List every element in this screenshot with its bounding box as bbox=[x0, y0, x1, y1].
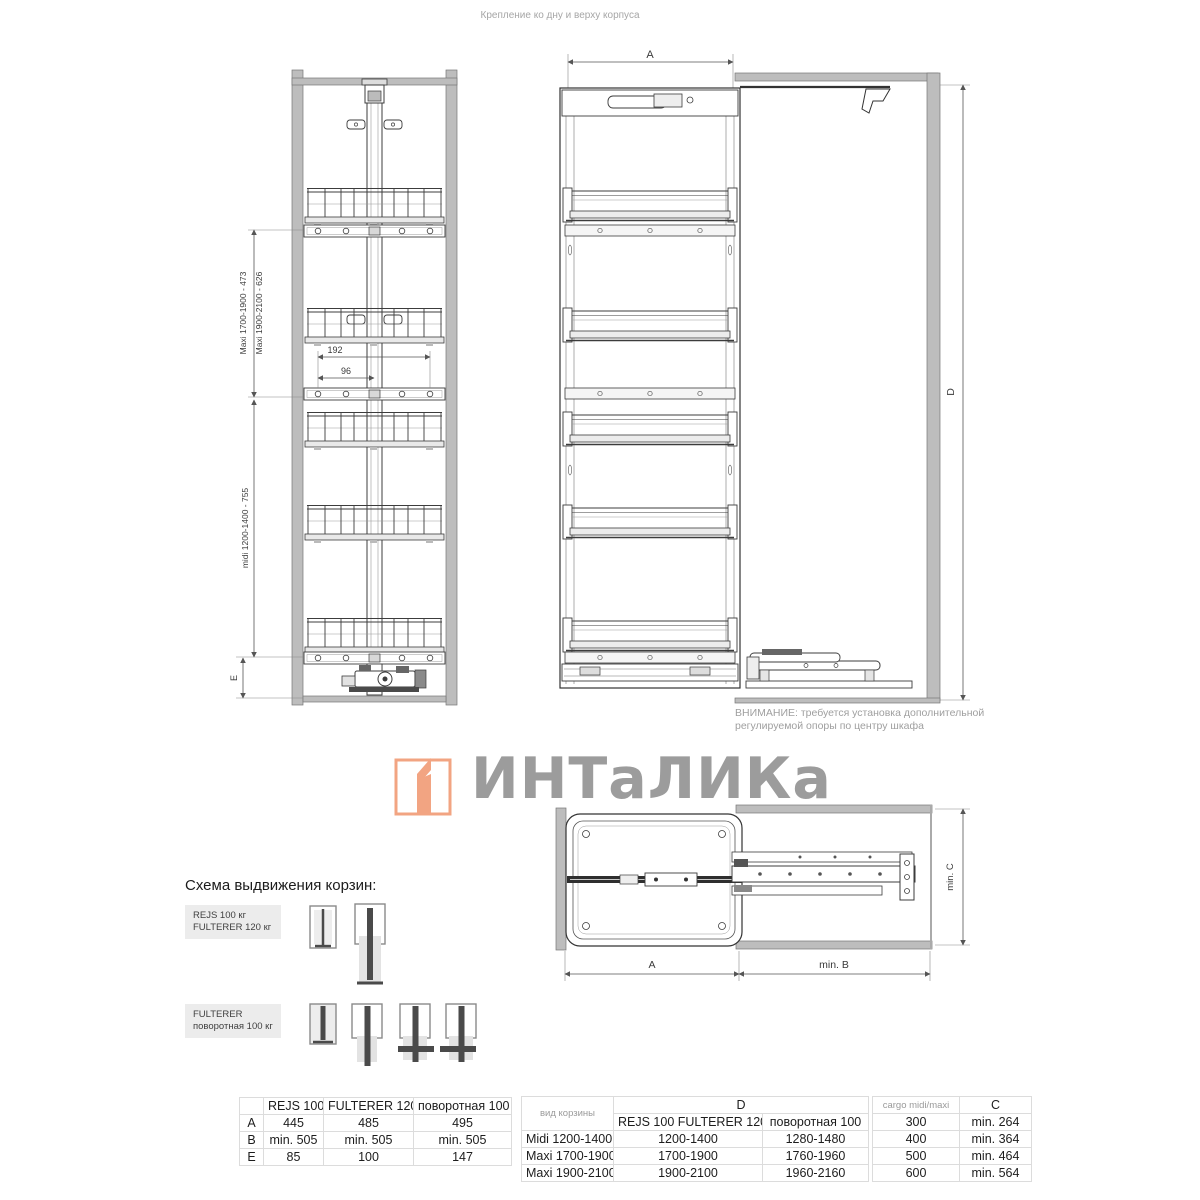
warning-line-1: ВНИМАНИЕ: требуется установка дополнител… bbox=[735, 707, 1015, 720]
table-cell: Maxi 1900-2100 bbox=[522, 1165, 614, 1182]
table-row: 400 min. 364 bbox=[873, 1131, 1032, 1148]
swivel-rotated-icon bbox=[398, 1004, 434, 1062]
warning-note: ВНИМАНИЕ: требуется установка дополнител… bbox=[735, 707, 1015, 733]
schema-row2-line2: поворотная 100 кг bbox=[193, 1021, 281, 1033]
logo-icon bbox=[393, 744, 459, 820]
page: Крепление ко дну и верху корпуса bbox=[0, 0, 1200, 1200]
table-row: 600 min. 564 bbox=[873, 1165, 1032, 1182]
side-dim-d-label: D bbox=[945, 388, 957, 396]
table-cell: 1700-1900 bbox=[614, 1148, 763, 1165]
top-dim-a-label: A bbox=[648, 959, 655, 971]
table-row: REJS 100 FULTERER 120 поворотная 100 bbox=[240, 1098, 512, 1115]
dim-maxi-1700-label: Maxi 1700-1900 - 473 bbox=[238, 271, 248, 354]
table-cell: 1200-1400 bbox=[614, 1131, 763, 1148]
schema-row2-icons bbox=[300, 1000, 500, 1078]
table-cell: Midi 1200-1400 bbox=[522, 1131, 614, 1148]
schema-row2-line1: FULTERER bbox=[193, 1009, 281, 1021]
table-row: Maxi 1900-2100 1900-2100 1960-2160 bbox=[522, 1165, 869, 1182]
table-row: cargo midi/maxi C bbox=[873, 1097, 1032, 1114]
basket-front-panel bbox=[556, 808, 566, 950]
top-dim-min-c-label: min. C bbox=[945, 863, 956, 891]
schema-heading: Схема выдвижения корзин: bbox=[185, 877, 376, 894]
cabinet-top-side bbox=[735, 73, 938, 81]
swivel-extended-icon bbox=[352, 1004, 382, 1066]
crossbar-2 bbox=[304, 388, 445, 400]
warning-line-2: регулируемой опоры по центру шкафа bbox=[735, 720, 1015, 733]
table-cell: D bbox=[614, 1097, 869, 1114]
side-dim-a-label: A bbox=[646, 50, 654, 61]
table-cell: min. 464 bbox=[960, 1148, 1032, 1165]
cabinet-side-wall-bottom bbox=[736, 941, 932, 949]
table-cell: Maxi 1700-1900 bbox=[522, 1148, 614, 1165]
table-cell: 1760-1960 bbox=[763, 1148, 869, 1165]
table-cell: 1280-1480 bbox=[763, 1131, 869, 1148]
table-cell: min. 564 bbox=[960, 1165, 1032, 1182]
crossbar-3 bbox=[304, 652, 445, 664]
side-view-drawing: A bbox=[550, 50, 985, 712]
dim-192-label: 192 bbox=[327, 345, 342, 355]
dim-e-label: E bbox=[229, 675, 239, 681]
schema-row1-icons bbox=[300, 902, 410, 994]
table-row: вид корзины D bbox=[522, 1097, 869, 1114]
bottom-mechanism bbox=[342, 664, 426, 692]
schema-row1-line2: FULTERER 120 кг bbox=[193, 922, 281, 934]
table-cell: 100 bbox=[324, 1149, 414, 1166]
cabinet-floor bbox=[735, 698, 940, 703]
pullout-bottom-carriage bbox=[562, 664, 738, 681]
table-row: E 85 100 147 bbox=[240, 1149, 512, 1166]
front-view-drawing: Maxi 1700-1900 - 473 Maxi 1900-2100 - 62… bbox=[228, 65, 472, 710]
table-cell: 1900-2100 bbox=[614, 1165, 763, 1182]
table-cell: поворотная 100 bbox=[414, 1098, 512, 1115]
table-d: вид корзины D REJS 100 FULTERER 120 пово… bbox=[521, 1096, 869, 1182]
cabinet-back-wall bbox=[927, 73, 940, 701]
logo-text: ИНТаЛИКа bbox=[471, 744, 832, 814]
table-row: B min. 505 min. 505 min. 505 bbox=[240, 1132, 512, 1149]
table-row: Maxi 1700-1900 1700-1900 1760-1960 bbox=[522, 1148, 869, 1165]
table-cell: 600 bbox=[873, 1165, 960, 1182]
table-cell bbox=[240, 1098, 264, 1115]
table-cell: 147 bbox=[414, 1149, 512, 1166]
swivel-rotated-shifted-icon bbox=[440, 1004, 476, 1062]
schema-row1-line1: REJS 100 кг bbox=[193, 910, 281, 922]
table-cell: min. 505 bbox=[264, 1132, 324, 1149]
table-cell: вид корзины bbox=[522, 1097, 614, 1131]
table-row: A 445 485 495 bbox=[240, 1115, 512, 1132]
cabinet-bottom-panel bbox=[303, 696, 446, 702]
table-cell: 445 bbox=[264, 1115, 324, 1132]
top-view-drawing: min. C A min. B bbox=[550, 795, 985, 990]
dim-midi-label: midi 1200-1400 - 755 bbox=[240, 488, 250, 569]
table-cell: 400 bbox=[873, 1131, 960, 1148]
table-cell: B bbox=[240, 1132, 264, 1149]
pullout-top-carriage bbox=[562, 90, 738, 116]
top-caption: Крепление ко дну и верху корпуса bbox=[420, 10, 700, 21]
swivel-closed-icon bbox=[310, 1004, 336, 1044]
top-rail-bracket bbox=[862, 89, 890, 113]
table-cell: 300 bbox=[873, 1114, 960, 1131]
table-cell: min. 364 bbox=[960, 1131, 1032, 1148]
table-cell: A bbox=[240, 1115, 264, 1132]
table-cell: поворотная 100 bbox=[763, 1114, 869, 1131]
brand-logo: ИНТаЛИКа bbox=[393, 744, 832, 822]
table-cell: 1960-2160 bbox=[763, 1165, 869, 1182]
table-cell: min. 505 bbox=[324, 1132, 414, 1149]
table-cell: min. 264 bbox=[960, 1114, 1032, 1131]
basket-extended-icon bbox=[355, 904, 385, 983]
dim-maxi-1900-label: Maxi 1900-2100 - 626 bbox=[254, 271, 264, 354]
telescopic-rail bbox=[732, 852, 915, 900]
cabinet-right-wall bbox=[446, 70, 457, 705]
table-cell: C bbox=[960, 1097, 1032, 1114]
table-cell: 485 bbox=[324, 1115, 414, 1132]
table-abe: REJS 100 FULTERER 120 поворотная 100 A 4… bbox=[239, 1097, 512, 1166]
table-cell: min. 505 bbox=[414, 1132, 512, 1149]
crossbar-1 bbox=[304, 225, 445, 237]
table-cell: REJS 100 bbox=[264, 1098, 324, 1115]
top-dim-min-b-label: min. B bbox=[819, 959, 849, 971]
table-cell: 85 bbox=[264, 1149, 324, 1166]
table-row: 500 min. 464 bbox=[873, 1148, 1032, 1165]
schema-row2-label: FULTERER поворотная 100 кг bbox=[185, 1004, 281, 1038]
cabinet-left-wall bbox=[292, 70, 303, 705]
table-cell: E bbox=[240, 1149, 264, 1166]
floor-rail bbox=[746, 649, 912, 688]
table-row: 300 min. 264 bbox=[873, 1114, 1032, 1131]
table-cell: 500 bbox=[873, 1148, 960, 1165]
table-cell: 495 bbox=[414, 1115, 512, 1132]
table-row: Midi 1200-1400 1200-1400 1280-1480 bbox=[522, 1131, 869, 1148]
basket-closed-icon bbox=[310, 906, 336, 948]
table-cell: REJS 100 FULTERER 120 bbox=[614, 1114, 763, 1131]
table-cell: FULTERER 120 bbox=[324, 1098, 414, 1115]
table-cell: cargo midi/maxi bbox=[873, 1097, 960, 1114]
table-c: cargo midi/maxi C 300 min. 264 400 min. … bbox=[872, 1096, 1032, 1182]
schema-row1-label: REJS 100 кг FULTERER 120 кг bbox=[185, 905, 281, 939]
dim-96-label: 96 bbox=[341, 366, 351, 376]
